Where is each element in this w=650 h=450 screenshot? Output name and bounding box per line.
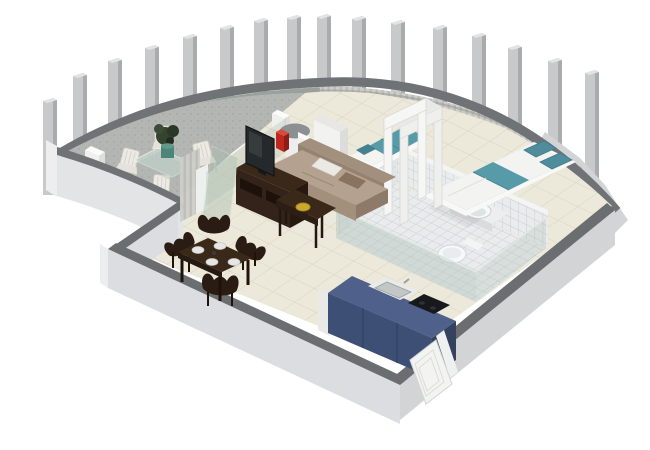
red-vase <box>276 129 289 152</box>
yellow-bowl <box>296 203 310 211</box>
parapet-end <box>46 140 57 197</box>
centerpiece <box>212 251 216 255</box>
southwest-wall-end <box>100 244 108 288</box>
apartment-render <box>0 0 650 450</box>
